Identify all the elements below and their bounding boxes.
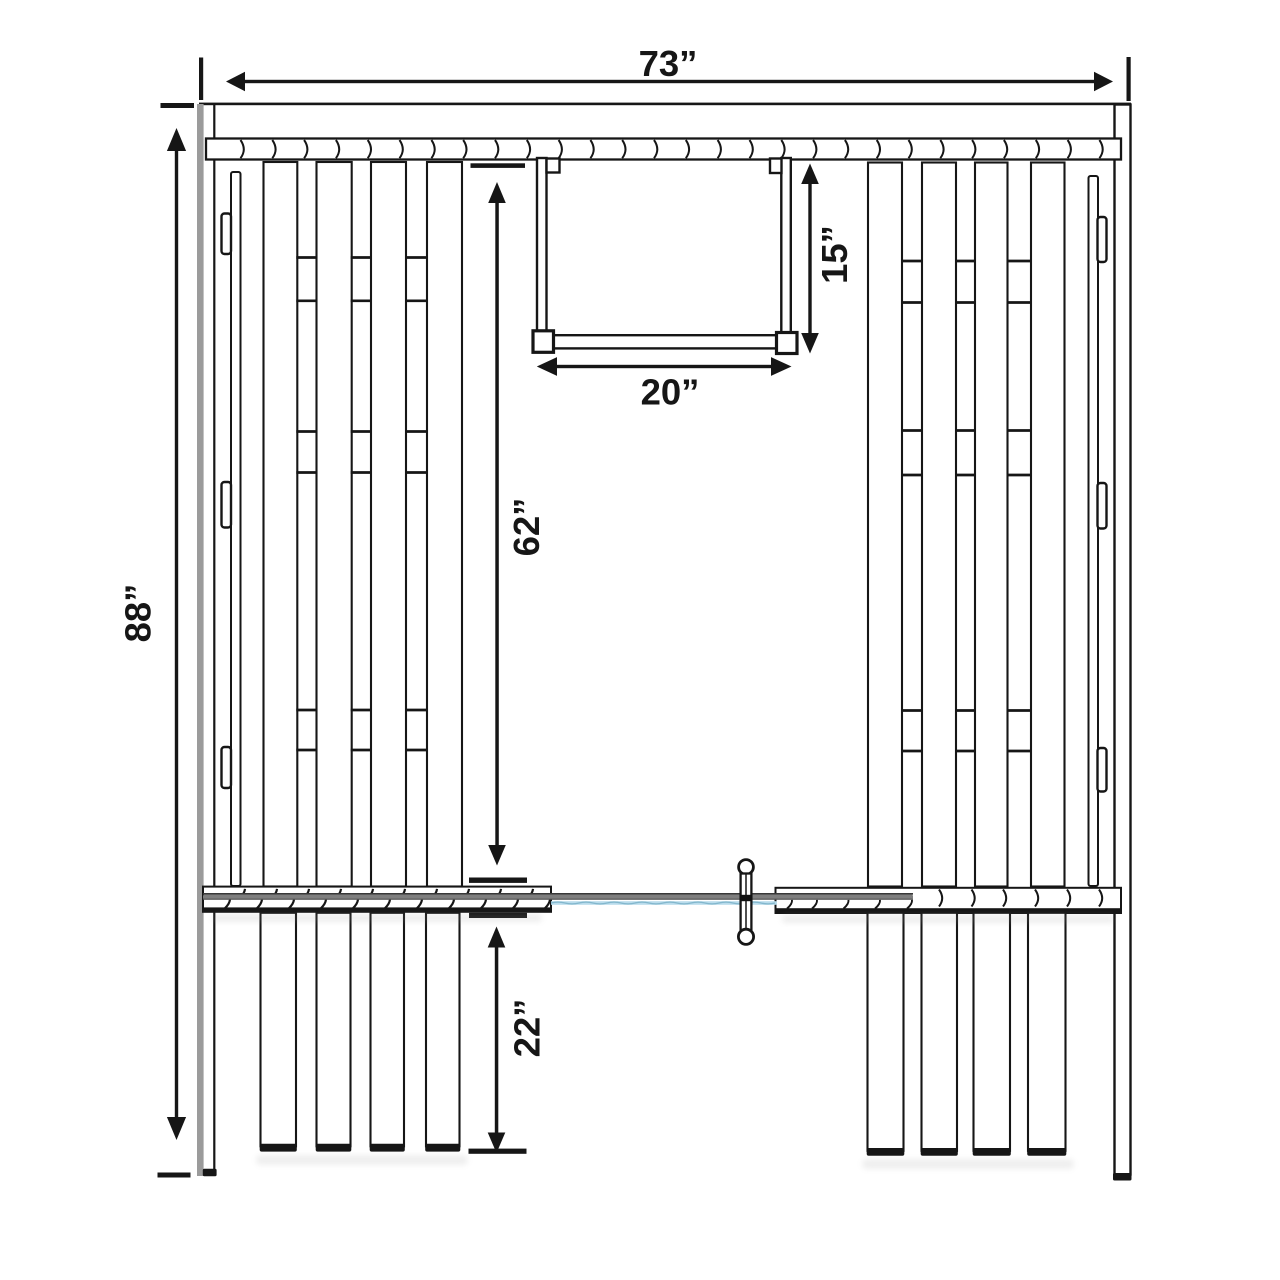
svg-text:15”: 15” [814, 225, 855, 284]
svg-text:22”: 22” [507, 999, 548, 1058]
svg-text:62”: 62” [506, 498, 547, 557]
svg-text:20”: 20” [641, 372, 700, 413]
svg-text:73”: 73” [639, 43, 698, 84]
svg-text:88”: 88” [118, 584, 159, 643]
